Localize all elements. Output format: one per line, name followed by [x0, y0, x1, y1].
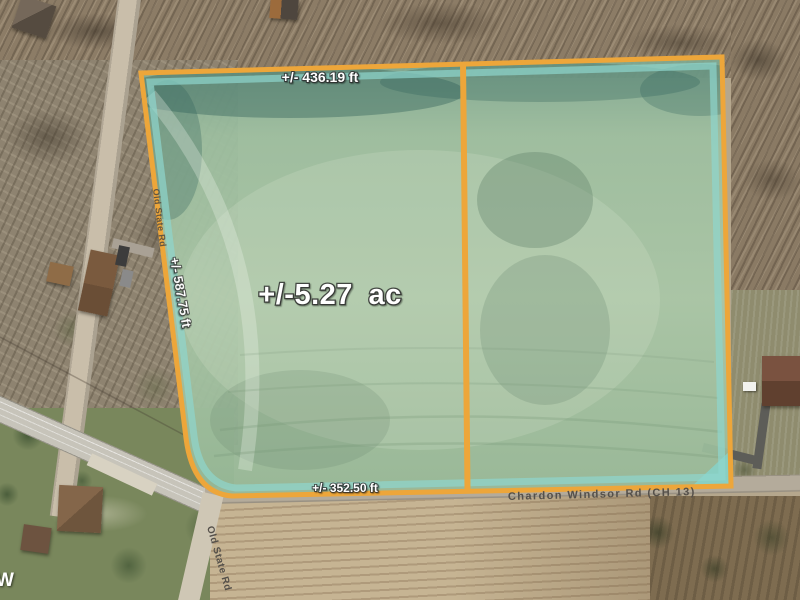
- aerial-parcel-map: +/- 436.19 ft +/- 587.75 ft +/-5.27 ac +…: [0, 0, 800, 600]
- area-label: +/-5.27 ac: [258, 279, 401, 311]
- house-right: [762, 356, 800, 406]
- vehicle-white: [743, 382, 756, 391]
- parcel-divider-line: [463, 62, 468, 489]
- house-bottom-left-1: [57, 485, 103, 533]
- plowed-field: [210, 494, 650, 600]
- watermark-text: W: [0, 570, 14, 592]
- house-top-center: [269, 0, 298, 20]
- woods-right-area: [731, 0, 800, 300]
- house-bottom-left-2: [20, 524, 51, 554]
